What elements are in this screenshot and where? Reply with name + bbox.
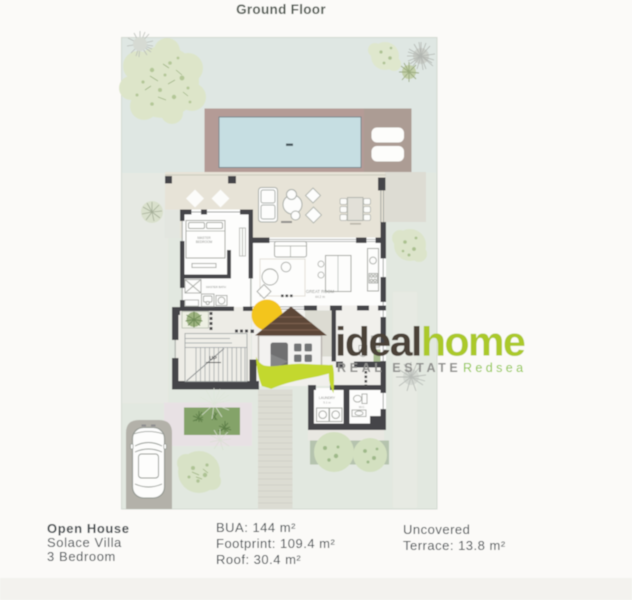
svg-text:Footprint: 109.4 m²: Footprint: 109.4 m² bbox=[216, 536, 335, 551]
svg-text:UP: UP bbox=[209, 356, 217, 362]
svg-text:GREAT ROOM: GREAT ROOM bbox=[306, 289, 335, 294]
svg-text:Ground Floor: Ground Floor bbox=[236, 2, 326, 17]
svg-text:3 Bedroom: 3 Bedroom bbox=[47, 549, 116, 564]
svg-text:REAL ESTATE: REAL ESTATE bbox=[337, 361, 461, 375]
svg-text:Solace Villa: Solace Villa bbox=[47, 535, 122, 550]
svg-text:LAUNDRY: LAUNDRY bbox=[319, 396, 336, 400]
svg-text:MASTER BATH: MASTER BATH bbox=[206, 285, 226, 289]
svg-text:W.C.: W.C. bbox=[359, 405, 365, 409]
svg-text:idealhome: idealhome bbox=[335, 319, 525, 365]
svg-text:Uncovered: Uncovered bbox=[403, 522, 470, 537]
svg-text:Roof: 30.4 m²: Roof: 30.4 m² bbox=[216, 552, 301, 567]
svg-text:5.1 m: 5.1 m bbox=[323, 401, 331, 405]
svg-text:44.2 m: 44.2 m bbox=[315, 295, 325, 299]
svg-text:Redsea: Redsea bbox=[463, 361, 527, 375]
svg-text:Terrace: 13.8 m²: Terrace: 13.8 m² bbox=[403, 538, 506, 553]
svg-text:Open House: Open House bbox=[47, 521, 130, 536]
svg-text:BUA: 144 m²: BUA: 144 m² bbox=[216, 520, 296, 535]
svg-text:BEDROOM: BEDROOM bbox=[196, 240, 213, 244]
